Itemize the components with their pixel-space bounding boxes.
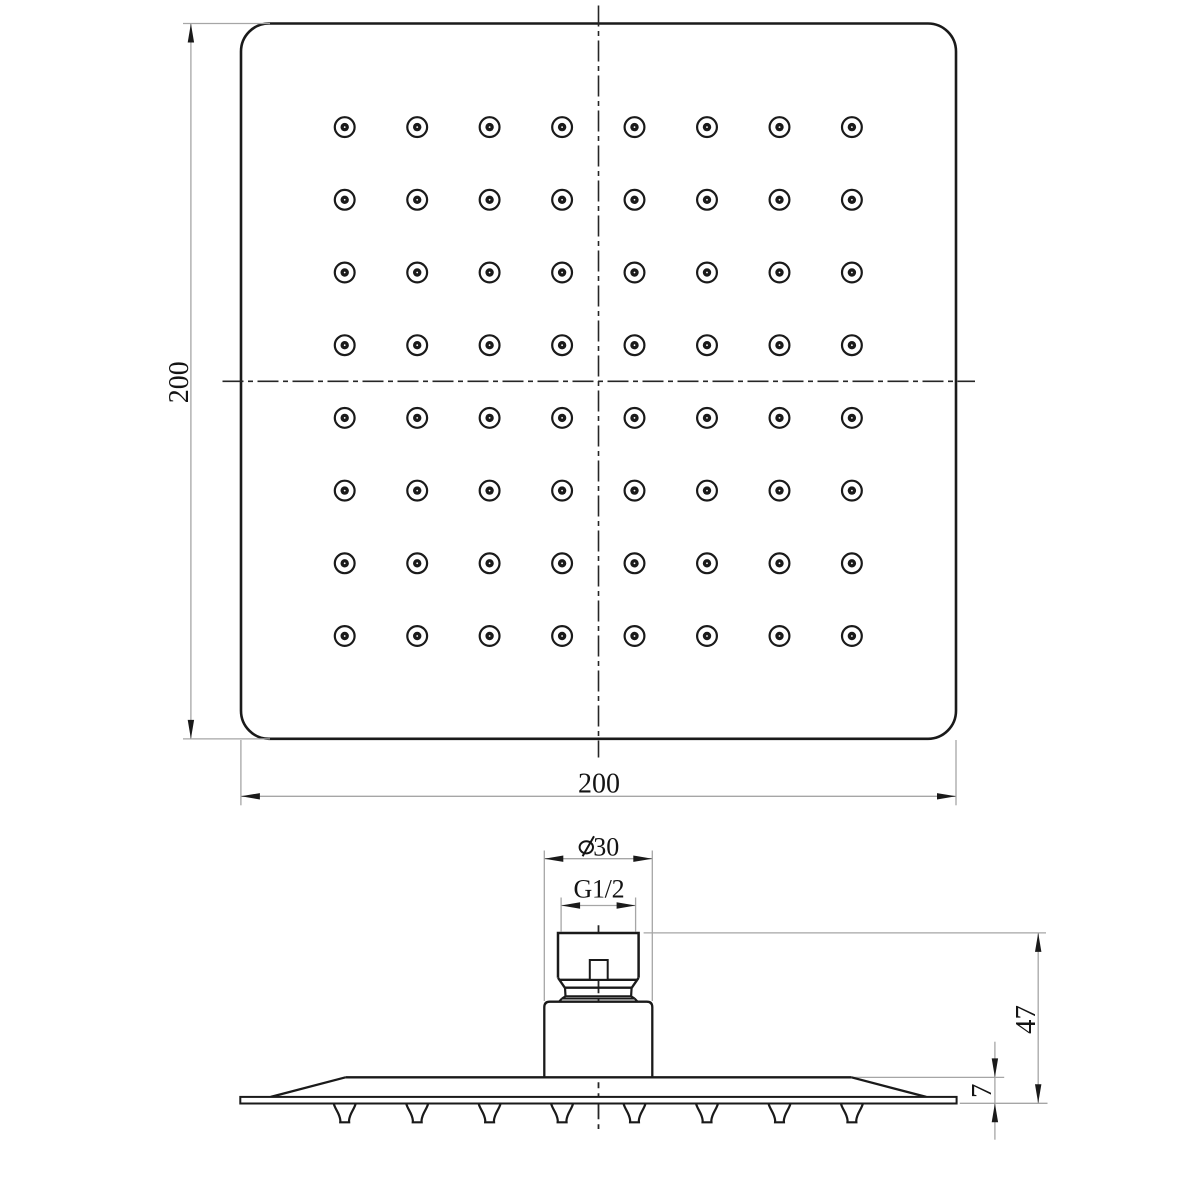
svg-text:30: 30 — [593, 833, 619, 862]
svg-text:200: 200 — [578, 769, 620, 800]
svg-text:200: 200 — [164, 361, 195, 403]
svg-text:47: 47 — [1010, 1005, 1042, 1034]
svg-text:G1/2: G1/2 — [573, 875, 624, 904]
svg-text:7: 7 — [966, 1084, 998, 1099]
